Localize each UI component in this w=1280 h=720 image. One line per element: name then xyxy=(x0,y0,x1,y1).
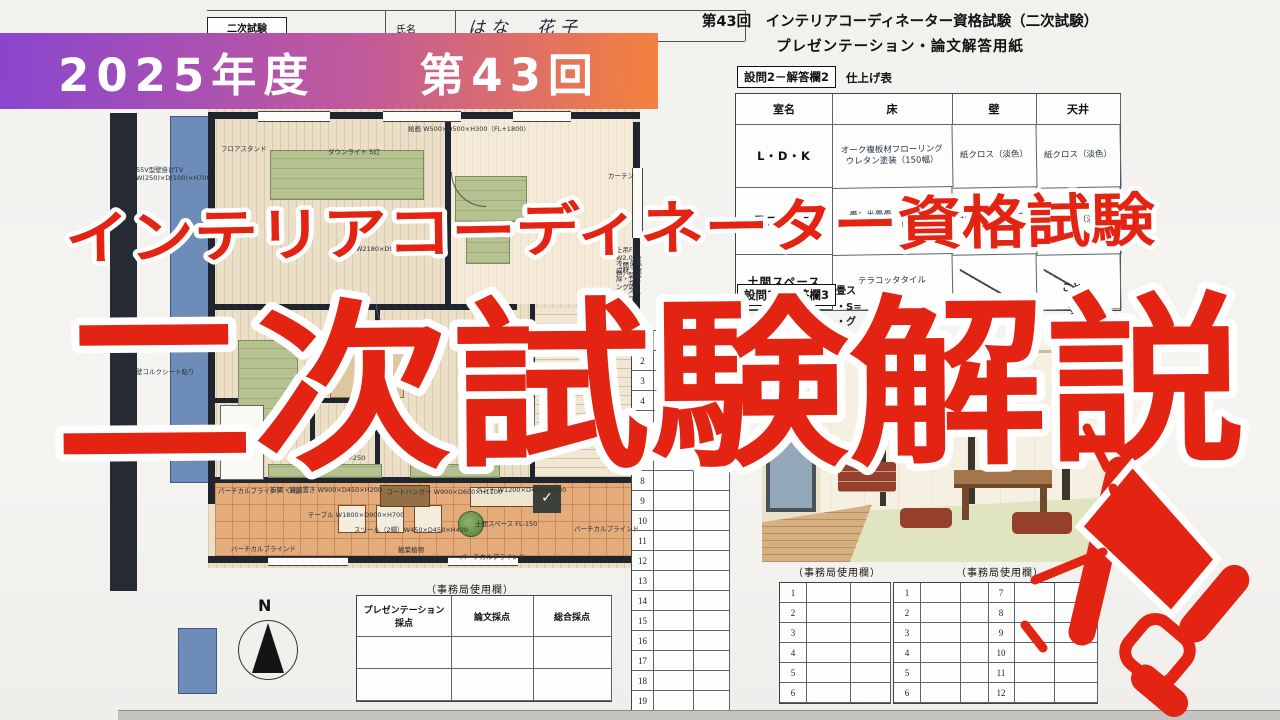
table-cell xyxy=(451,637,534,669)
sketch-cushion-stack xyxy=(838,462,896,492)
table-cell: プレゼンテーション 採点 xyxy=(357,596,452,637)
table-cell xyxy=(653,451,694,471)
table-block xyxy=(330,350,404,398)
north-compass: N xyxy=(234,596,304,688)
table-cell xyxy=(653,371,694,391)
table-cell xyxy=(850,643,891,663)
table-cell xyxy=(653,611,694,631)
table-cell xyxy=(693,471,730,491)
table-cell xyxy=(806,663,851,683)
table-cell: 19 xyxy=(632,691,654,711)
table-cell xyxy=(653,551,694,571)
megaphone-body xyxy=(1023,463,1280,720)
table-cell xyxy=(693,411,730,431)
table-cell: 2 xyxy=(780,603,807,623)
table-cell: 紙クロス（淡色） xyxy=(951,124,1037,188)
table-cell xyxy=(653,511,694,531)
compass-circle xyxy=(238,620,298,680)
table-cell xyxy=(653,651,694,671)
table-cell xyxy=(850,683,891,703)
door-arc xyxy=(376,304,415,343)
admin-table-left: 123456 xyxy=(779,582,891,704)
table-cell xyxy=(533,637,612,669)
table-cell xyxy=(850,663,891,683)
window xyxy=(383,111,461,122)
table-cell: 1 xyxy=(632,331,654,351)
chair-block xyxy=(466,232,510,264)
north-label: N xyxy=(258,596,271,615)
table-cell: 4 xyxy=(894,643,921,663)
table-cell: 壁 xyxy=(952,94,1037,125)
accent-stroke xyxy=(1087,428,1107,468)
balcony-block xyxy=(178,628,217,694)
table-cell: 9 xyxy=(632,491,654,511)
table-cell xyxy=(850,623,891,643)
table-cell: 15 xyxy=(632,611,654,631)
table-cell: 6 xyxy=(780,683,807,703)
table-cell xyxy=(357,637,452,669)
year-badge-label: 2025年度 第43回 xyxy=(58,39,600,104)
question2-label: 設問2－解答欄2 xyxy=(737,66,836,88)
window xyxy=(513,111,571,122)
table-cell xyxy=(693,591,730,611)
sheet-title-line2: プレゼンテーション・論文解答用紙 xyxy=(672,35,1128,56)
table-cell: 畳：半畳畳（縁なし） 板敷き：ヒバ xyxy=(831,187,953,256)
plan-rooms: ✓ xyxy=(208,108,640,568)
table-cell xyxy=(653,571,694,591)
table-cell: 3 xyxy=(894,623,921,643)
table-cell xyxy=(693,631,730,651)
table-cell xyxy=(653,671,694,691)
table-cell: 天井 xyxy=(1036,94,1121,125)
score-table: プレゼンテーション 採点論文採点総合採点 xyxy=(356,595,612,702)
table-cell: 総合採点 xyxy=(533,596,612,637)
washer-fixture xyxy=(220,442,264,480)
table-cell xyxy=(693,391,730,411)
table-cell xyxy=(952,254,1038,310)
table-cell xyxy=(850,583,891,603)
table-cell: 1 xyxy=(894,583,921,603)
table-cell xyxy=(693,611,730,631)
sink-fixture xyxy=(270,408,294,432)
table-cell: 紙クロス（淡色） xyxy=(1035,187,1121,255)
ceiling-beam xyxy=(762,350,1128,353)
floor-plan: ✓ 絵画 W500×D500×H300（FL+1800）フロアスタンドダウンライ… xyxy=(108,98,643,603)
table-cell xyxy=(653,691,694,711)
closet-area xyxy=(535,308,633,477)
table-cell: 12 xyxy=(632,551,654,571)
plan-annotation: 絵画 W500×D500×H300（FL+1800） xyxy=(408,125,530,133)
table-cell: 13 xyxy=(632,571,654,591)
table-cell xyxy=(653,351,694,371)
plan-annotation: カーテン xyxy=(608,172,634,180)
table-cell: 1 xyxy=(780,583,807,603)
table-cell xyxy=(806,603,851,623)
table-cell: 14 xyxy=(632,591,654,611)
q3-fragment: ・グ xyxy=(836,313,856,328)
table-cell xyxy=(693,451,730,471)
plan-annotation: FL+250 xyxy=(340,454,365,462)
table-cell xyxy=(920,683,961,703)
compass-needle xyxy=(252,623,284,673)
blind-strip xyxy=(268,464,382,478)
plan-annotation: バーチカルブラインド xyxy=(231,545,296,553)
table-cell xyxy=(693,491,730,511)
year-badge: 2025年度 第43回 xyxy=(0,33,658,109)
table-cell: 3 xyxy=(632,371,654,391)
table-cell xyxy=(653,411,694,431)
table-cell xyxy=(693,351,730,371)
table-cell xyxy=(806,583,851,603)
wall-inner-h1 xyxy=(215,304,517,310)
table-cell: 4 xyxy=(632,391,654,411)
window xyxy=(268,557,348,566)
table-cell xyxy=(653,591,694,611)
table-cell xyxy=(653,491,694,511)
plan-left-edge xyxy=(110,113,137,591)
table-cell xyxy=(693,531,730,551)
q3-fragment: こと xyxy=(1062,279,1082,294)
table-cell xyxy=(653,531,694,551)
table-cell: 畳スペース xyxy=(736,188,833,255)
table-cell xyxy=(357,669,452,701)
table-cell xyxy=(693,331,730,351)
question3-label: 設問3－解答欄3 xyxy=(737,284,836,306)
plan-annotation: 観葉植物 xyxy=(398,546,424,554)
vanity-fixture xyxy=(220,405,264,439)
plan-annotation: 型板ガラス入り xyxy=(628,271,643,304)
table-cell: 5 xyxy=(632,411,654,431)
table-cell xyxy=(693,511,730,531)
plan-annotation: 壁コルクシート貼り xyxy=(136,368,195,376)
plan-annotation: 新聞・雑誌置き W900×D450×H200 xyxy=(270,486,382,494)
accent-stroke xyxy=(1025,625,1043,648)
table-cell xyxy=(693,671,730,691)
table-cell xyxy=(693,571,730,591)
admin-caption-left: （事務局使用欄） xyxy=(793,564,881,579)
plan-annotation: 55V型壁掛けTV W(250)×D(100)×H700 xyxy=(136,166,211,182)
plan-annotation: W2180×D900×H700 xyxy=(356,245,425,253)
table-cell: 16 xyxy=(632,631,654,651)
table-cell xyxy=(920,603,961,623)
table-cell xyxy=(920,583,961,603)
plan-annotation: バーチカルブラインド xyxy=(574,525,639,533)
sheet-title-line1: 第43回 インテリアコーディネーター資格試験（二次試験） xyxy=(672,10,1128,31)
plan-annotation: 土間スペース FL-150 xyxy=(475,520,537,528)
form-line xyxy=(207,10,745,11)
table-cell xyxy=(806,643,851,663)
table-cell: 5 xyxy=(894,663,921,683)
table-cell: オーク複板材フローリング ウレタン塗装（150幅） xyxy=(831,124,953,189)
sketch-window xyxy=(766,404,816,512)
table-cell xyxy=(693,551,730,571)
table-cell xyxy=(451,669,534,701)
table-cell: 2 xyxy=(894,603,921,623)
table-cell: 6 xyxy=(632,431,654,451)
table-cell xyxy=(806,683,851,703)
table-cell xyxy=(653,391,694,411)
table-cell: 6 xyxy=(894,683,921,703)
thumbnail-stage: ✓ 絵画 W500×D500×H300（FL+1800）フロアスタンドダウンライ… xyxy=(0,0,1280,720)
table-cell xyxy=(693,691,730,711)
plan-annotation: スツール（2脚）W450×D450×H420 xyxy=(354,526,468,534)
table-cell: 2 xyxy=(632,351,654,371)
plan-annotation: テーブル W1800×D900×H700 xyxy=(308,511,404,519)
finish-table-caption: 仕上げ表 xyxy=(846,70,892,86)
plan-annotation: パーチカルブラインド xyxy=(460,553,525,561)
table-cell: 室名 xyxy=(736,94,833,125)
table-cell: 5 xyxy=(780,663,807,683)
table-cell: 3 xyxy=(780,623,807,643)
table-cell xyxy=(806,623,851,643)
sketch-table-leg xyxy=(962,488,969,520)
sheet-title: 第43回 インテリアコーディネーター資格試験（二次試験） プレゼンテーション・論… xyxy=(672,10,1128,56)
plan-annotation: ベンチ W1200×D450×H400 xyxy=(476,486,566,494)
numbered-answer-table: 1234567891011121314151617181920 xyxy=(631,330,730,720)
table-cell xyxy=(693,431,730,451)
table-cell: 紙クロス（淡色） xyxy=(1035,124,1121,188)
table-cell xyxy=(850,603,891,623)
table-cell: 床 xyxy=(832,94,953,125)
table-cell: 8 xyxy=(632,471,654,491)
table-cell xyxy=(653,631,694,651)
table-cell: 7 xyxy=(632,451,654,471)
table-cell: 11 xyxy=(632,531,654,551)
table-cell: 西側：コルクシート貼り xyxy=(951,187,1037,255)
table-cell: 17 xyxy=(632,651,654,671)
q3-fragment: 畳ス xyxy=(836,282,856,297)
table-cell: L・D・K xyxy=(736,125,833,188)
table-cell xyxy=(693,371,730,391)
table-cell xyxy=(920,643,961,663)
blind-strip xyxy=(410,464,500,478)
q3-fragment: ・S= xyxy=(836,298,862,313)
table-cell xyxy=(693,651,730,671)
table-cell xyxy=(920,663,961,683)
table-cell xyxy=(533,669,612,701)
window xyxy=(258,111,330,122)
table-cell xyxy=(920,623,961,643)
megaphone-icon xyxy=(985,400,1280,720)
q3-fragment: す xyxy=(1068,302,1078,317)
table-cell xyxy=(653,431,694,451)
table-cell xyxy=(653,331,694,351)
sofa-block xyxy=(270,150,424,200)
plan-annotation: ダウンライト 5灯 xyxy=(328,148,380,156)
table-cell: 4 xyxy=(780,643,807,663)
wall-inner-v1 xyxy=(445,116,451,306)
sketch-cushion xyxy=(900,508,952,528)
table-cell xyxy=(653,471,694,491)
table-cell: 論文採点 xyxy=(451,596,534,637)
plan-annotation: フロアスタンド xyxy=(221,145,267,153)
table-cell: 18 xyxy=(632,671,654,691)
wall-inner-v4 xyxy=(530,304,535,482)
admin-caption-score: （事務局使用欄） xyxy=(426,581,514,596)
